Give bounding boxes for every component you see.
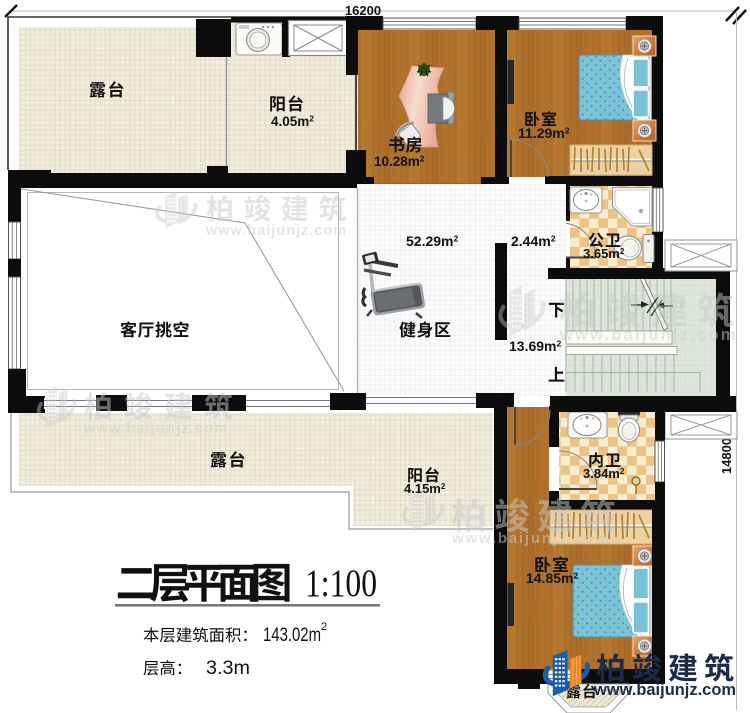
svg-text:1:100: 1:100	[305, 562, 377, 605]
svg-text:www.baijunjz.com: www.baijunjz.com	[205, 223, 347, 239]
svg-text:www.baijunjz.com: www.baijunjz.com	[593, 680, 736, 699]
svg-text:2: 2	[321, 621, 327, 633]
svg-text:3.65m2: 3.65m2	[583, 246, 625, 261]
svg-text:3.84m2: 3.84m2	[583, 466, 625, 481]
svg-text:16200: 16200	[345, 3, 381, 18]
svg-text:3.3m: 3.3m	[206, 658, 250, 679]
svg-text:www.baijunjz.com: www.baijunjz.com	[559, 326, 738, 344]
svg-text:2.44m2: 2.44m2	[511, 233, 556, 249]
svg-text:10.28m2: 10.28m2	[374, 154, 425, 169]
svg-text:143.02m: 143.02m	[263, 625, 321, 646]
svg-text:14.85m2: 14.85m2	[526, 570, 578, 586]
svg-text:4.05m2: 4.05m2	[271, 114, 314, 129]
svg-text:52.29m2: 52.29m2	[406, 233, 458, 249]
svg-text:11.29m2: 11.29m2	[518, 125, 570, 141]
svg-text:www.baijunjz.com: www.baijunjz.com	[451, 530, 610, 547]
svg-text:13.69m2: 13.69m2	[509, 338, 561, 354]
svg-text:14800: 14800	[719, 438, 734, 474]
svg-text:4.15m2: 4.15m2	[404, 481, 446, 496]
svg-text:www.baijunjz.com: www.baijunjz.com	[83, 421, 228, 437]
